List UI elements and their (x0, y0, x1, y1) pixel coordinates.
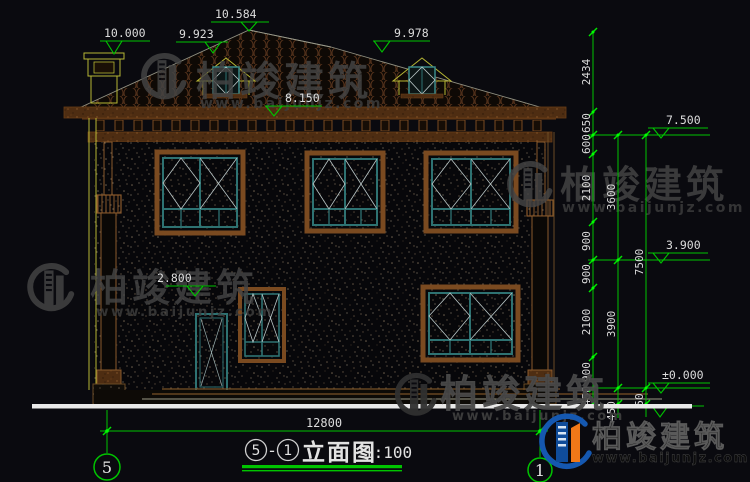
dimension-ticks (589, 28, 650, 408)
elevation-label: 2.800 (157, 271, 192, 285)
dim-label: 2434 (580, 58, 593, 85)
title-underline-thin (242, 470, 402, 471)
dim-label: 3900 (605, 311, 618, 338)
logo-brand-text: 柏竣建筑 (592, 420, 728, 455)
elevation-label: 3.900 (666, 238, 701, 252)
elevation-marker-dormer-right: 9.978 (373, 26, 430, 52)
title-axis-right: 1 (284, 443, 293, 459)
elevation-label: 7.500 (666, 113, 701, 127)
elevation-label: 10.000 (104, 26, 146, 40)
dim-label: 2100 (580, 309, 593, 336)
elevation-label: 10.584 (215, 7, 257, 21)
watermark-url: www.baijunjz.com (96, 304, 274, 320)
watermark-url: www.baijunjz.com (562, 200, 745, 216)
drawing-title: 5 - 1 立面图 1:100 (242, 439, 412, 471)
elevation-label: 9.923 (179, 27, 214, 41)
dim-label: 600 (580, 134, 593, 154)
dim-label: 900 (580, 264, 593, 284)
corbel-row (94, 120, 546, 131)
total-width-label: 12800 (306, 416, 342, 430)
elevation-marker-chimney: 10.000 (100, 26, 150, 54)
title-separator: - (269, 441, 275, 460)
watermark-left: 柏竣建筑 www.baijunjz.com (30, 266, 274, 320)
title-scale: 1:100 (364, 443, 412, 462)
eave-assembly (64, 107, 566, 142)
watermark-logo-icon (30, 266, 71, 308)
logo-building-orange (571, 423, 580, 462)
elevation-label: 9.978 (394, 26, 429, 40)
dim-label: 2100 (580, 175, 593, 202)
dim-label: 7500 (633, 249, 646, 276)
title-underline (242, 465, 402, 468)
dim-label: 650 (580, 113, 593, 133)
drawing-surface: 柏竣建筑 www.baijunjz.com 柏竣建筑 www.baijunjz.… (0, 0, 750, 482)
elevation-marker-right-middle: 3.900 (648, 238, 708, 263)
elevation-marker-ridge: 10.584 (211, 7, 269, 31)
right-dimension-chain: 2434 650 600 2100 900 900 2100 900 450 3… (580, 28, 710, 421)
dim-label: 3600 (605, 184, 618, 211)
elevation-label: 8.150 (285, 91, 320, 105)
cad-elevation-drawing: 柏竣建筑 www.baijunjz.com 柏竣建筑 www.baijunjz.… (0, 0, 750, 482)
axis-number: 5 (102, 458, 112, 477)
title-axis-left: 5 (252, 443, 261, 459)
elevation-marker-right-zero: ±0.000 (648, 368, 710, 417)
axis-number: 1 (535, 461, 545, 480)
elevation-label: ±0.000 (662, 368, 704, 382)
elevation-marker-right-upper: 7.500 (648, 113, 708, 138)
dim-label: 900 (580, 231, 593, 251)
logo-url-text: www.baijunjz.com (592, 451, 749, 466)
